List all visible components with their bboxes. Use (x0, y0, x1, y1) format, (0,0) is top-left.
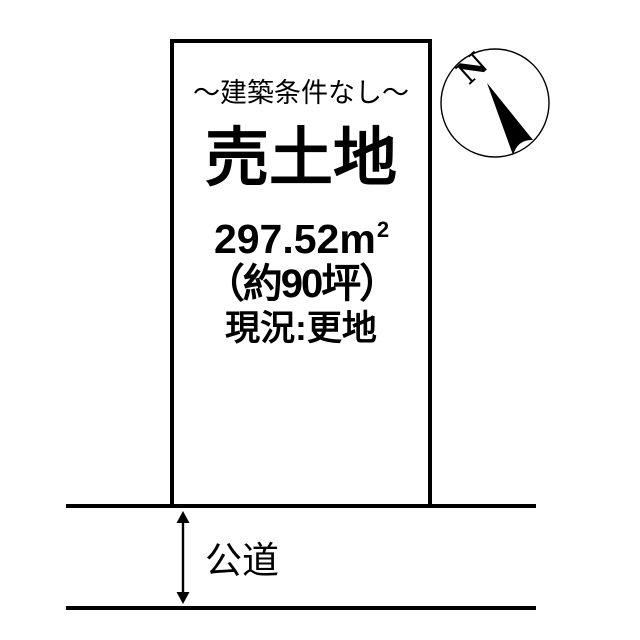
road-label: 公道 (205, 542, 279, 579)
land-plot-diagram: ～建築条件なし～ 売土地 297.52m2 （約90坪） 現況:更地 公道 N (0, 0, 640, 640)
building-condition-label: ～建築条件なし～ (170, 80, 432, 107)
parcel-title: 売土地 (170, 126, 432, 190)
parcel-area-sqm: 297.52m2 (170, 219, 432, 260)
road-upper-edge (66, 504, 536, 508)
road-width-arrow-icon (172, 510, 194, 605)
area-value: 297.52 (214, 216, 339, 262)
area-unit-exponent: 2 (377, 219, 389, 241)
area-unit: m (339, 216, 375, 262)
parcel-status: 現況:更地 (170, 311, 432, 346)
compass: N (438, 46, 552, 160)
road-lower-edge (66, 606, 536, 610)
parcel-area-tsubo: （約90坪） (170, 264, 432, 304)
